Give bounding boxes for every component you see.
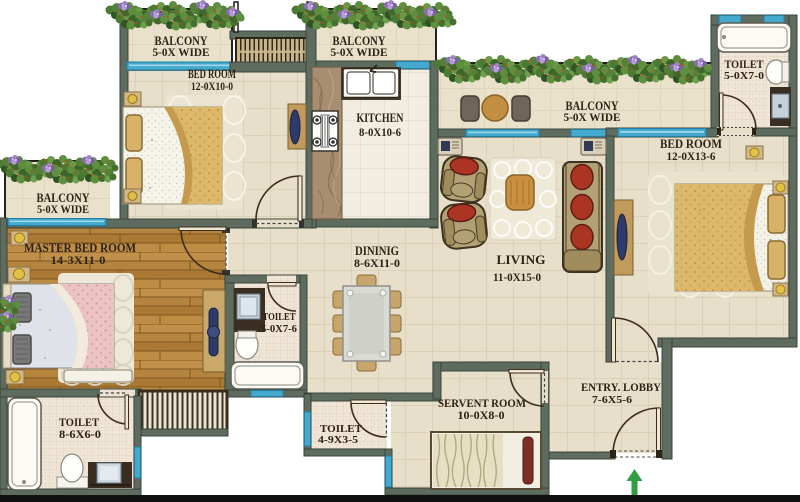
- svg-text:ENTRY. LOBBY: ENTRY. LOBBY: [581, 382, 662, 394]
- svg-text:10-0X8-0: 10-0X8-0: [458, 410, 505, 422]
- svg-text:SERVENT ROOM: SERVENT ROOM: [438, 396, 526, 410]
- svg-text:BALCONY: BALCONY: [155, 34, 208, 48]
- svg-text:BED ROOM: BED ROOM: [660, 137, 722, 151]
- svg-text:12-0X13-6: 12-0X13-6: [667, 151, 716, 163]
- svg-text:7-6X5-6: 7-6X5-6: [592, 394, 633, 406]
- svg-text:BED ROOM: BED ROOM: [188, 67, 236, 81]
- svg-text:5-0X7-6: 5-0X7-6: [261, 324, 297, 335]
- svg-text:11-0X15-0: 11-0X15-0: [493, 272, 541, 284]
- svg-text:BALCONY: BALCONY: [566, 99, 619, 113]
- svg-text:5-0X WIDE: 5-0X WIDE: [153, 47, 210, 59]
- svg-text:14-3X11-0: 14-3X11-0: [51, 255, 106, 267]
- svg-text:BALCONY: BALCONY: [333, 34, 386, 48]
- svg-text:KITCHEN: KITCHEN: [357, 111, 404, 125]
- svg-text:4-9X3-5: 4-9X3-5: [318, 434, 359, 446]
- svg-text:5-0X7-0: 5-0X7-0: [724, 70, 765, 82]
- svg-text:MASTER BED ROOM: MASTER BED ROOM: [24, 241, 136, 255]
- svg-text:8-6X6-0: 8-6X6-0: [59, 429, 101, 441]
- svg-text:TOILET: TOILET: [59, 415, 99, 429]
- svg-text:8-6X11-0: 8-6X11-0: [354, 258, 400, 270]
- svg-text:5-0X WIDE: 5-0X WIDE: [564, 112, 621, 124]
- svg-text:LIVING: LIVING: [497, 253, 546, 267]
- svg-text:5-0X WIDE: 5-0X WIDE: [331, 47, 388, 59]
- svg-text:DININIG: DININIG: [355, 244, 399, 258]
- svg-text:BALCONY: BALCONY: [37, 191, 90, 205]
- svg-text:TOILET: TOILET: [263, 312, 296, 323]
- svg-text:8-0X10-6: 8-0X10-6: [359, 127, 401, 139]
- svg-text:5-0X WIDE: 5-0X WIDE: [37, 204, 89, 216]
- svg-text:12-0X10-0: 12-0X10-0: [191, 81, 233, 93]
